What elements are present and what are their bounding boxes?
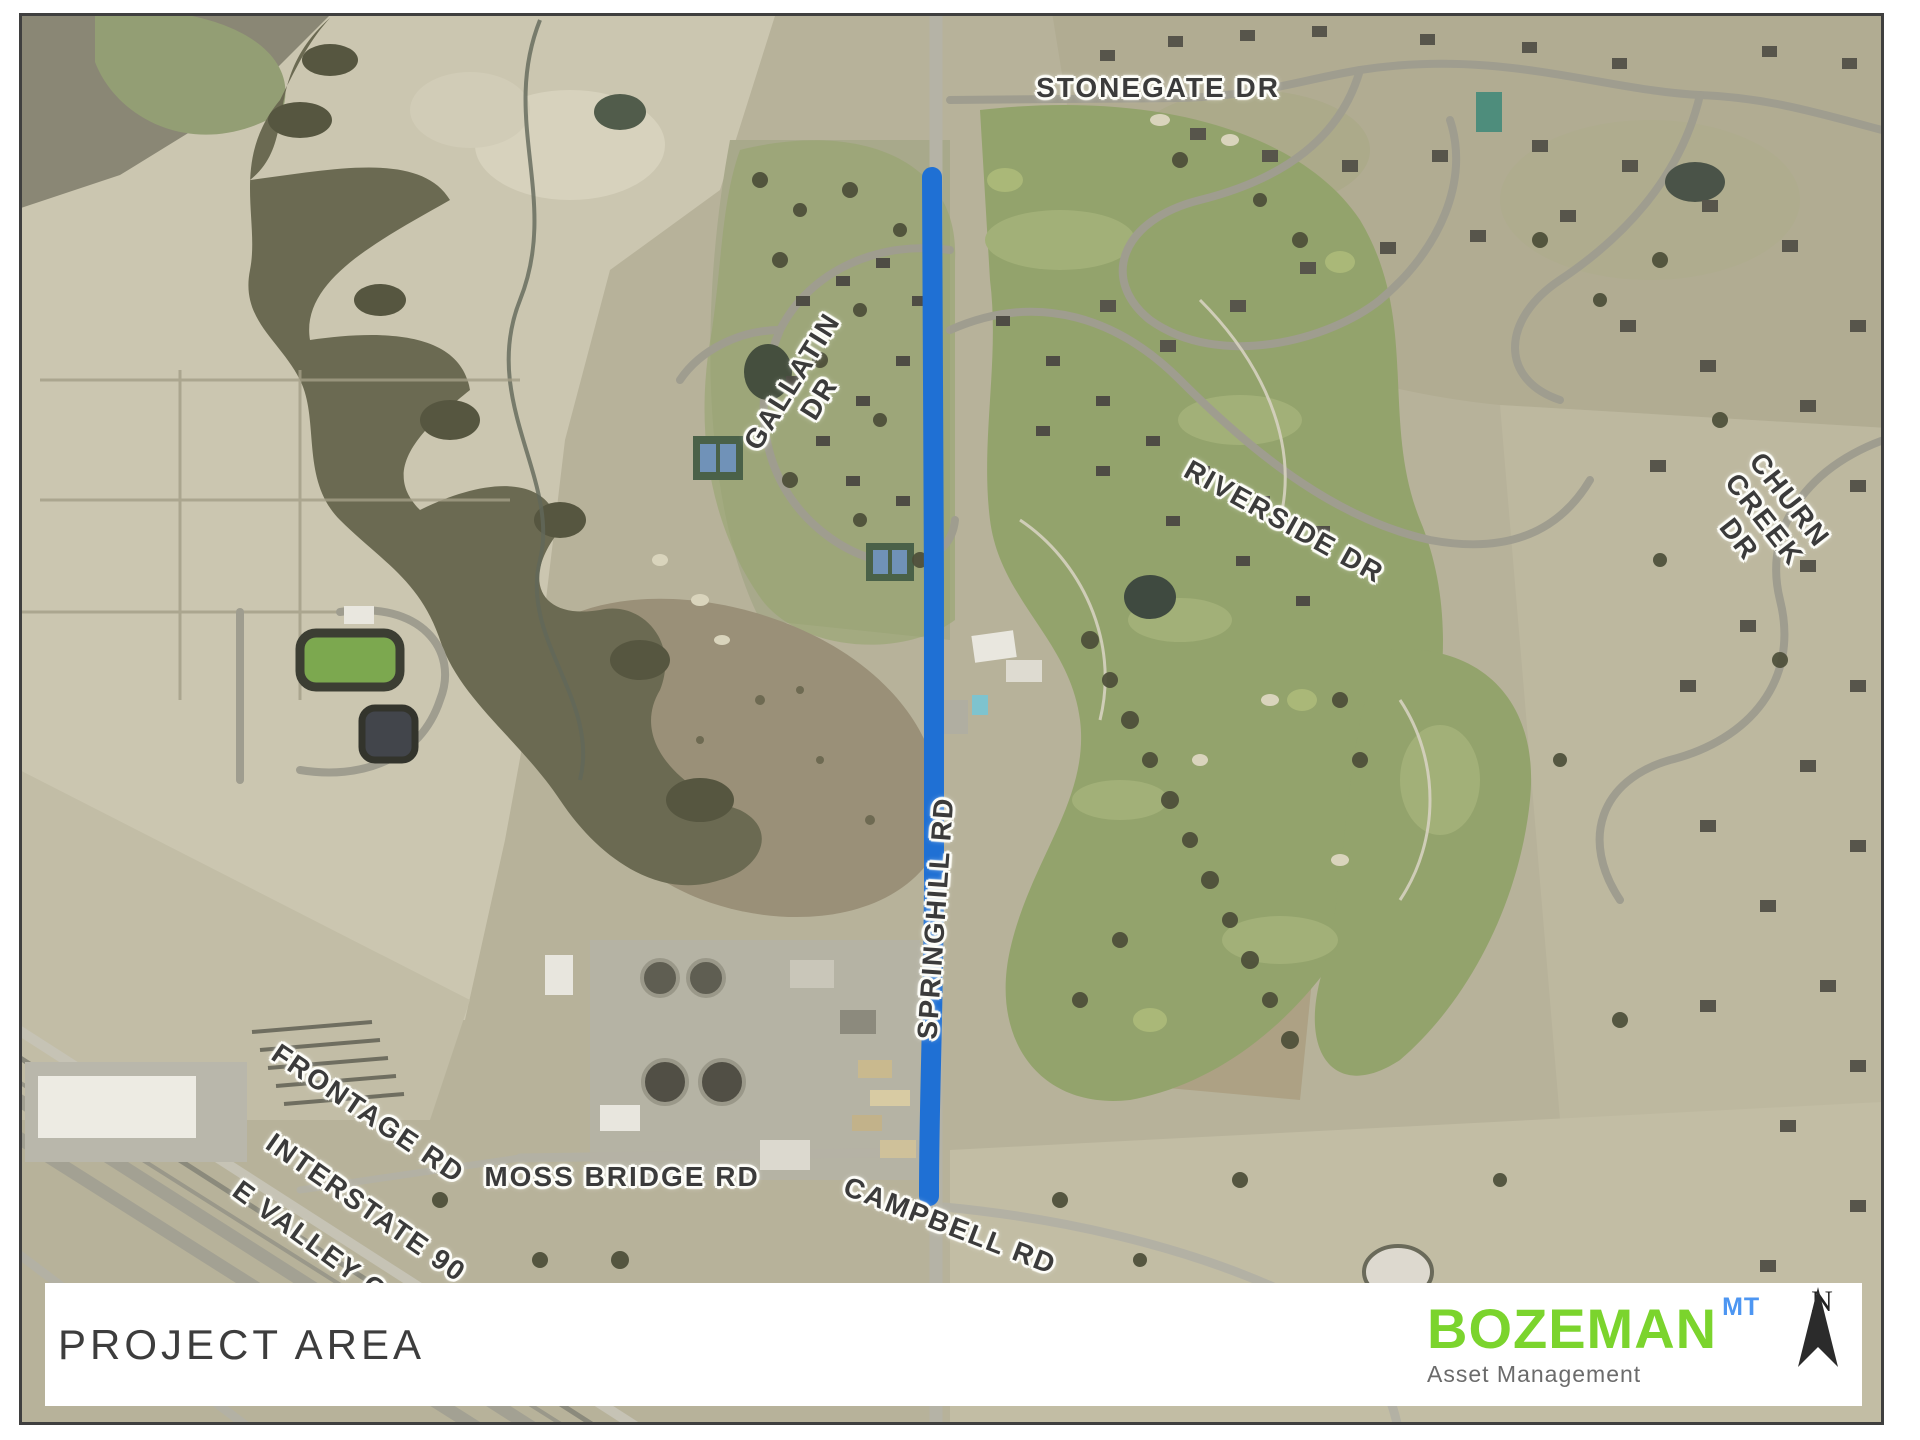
project-area-highlight bbox=[929, 177, 934, 1196]
mt-superscript: MT bbox=[1722, 1295, 1760, 1320]
north-arrow: N bbox=[1790, 1285, 1854, 1319]
footer-bar: PROJECT AREA BOZEMANMT Asset Management … bbox=[45, 1283, 1862, 1406]
page: { "map": { "highlight_color": "#1f70d4",… bbox=[0, 0, 1920, 1440]
north-arrow-icon bbox=[1790, 1287, 1846, 1371]
map-frame: STONEGATE DR GALLATIN DR RIVERSIDE DR CH… bbox=[19, 13, 1884, 1425]
road-label-stonegate-dr: STONEGATE DR bbox=[1036, 72, 1280, 104]
bozeman-wordmark: BOZEMAN bbox=[1427, 1301, 1717, 1357]
logo-subtitle: Asset Management bbox=[1427, 1363, 1760, 1386]
aerial-map: STONEGATE DR GALLATIN DR RIVERSIDE DR CH… bbox=[19, 13, 1884, 1425]
bozeman-logo: BOZEMANMT Asset Management bbox=[1427, 1301, 1760, 1386]
road-label-moss-bridge-rd: MOSS BRIDGE RD bbox=[484, 1161, 759, 1193]
page-title: PROJECT AREA bbox=[58, 1321, 425, 1369]
